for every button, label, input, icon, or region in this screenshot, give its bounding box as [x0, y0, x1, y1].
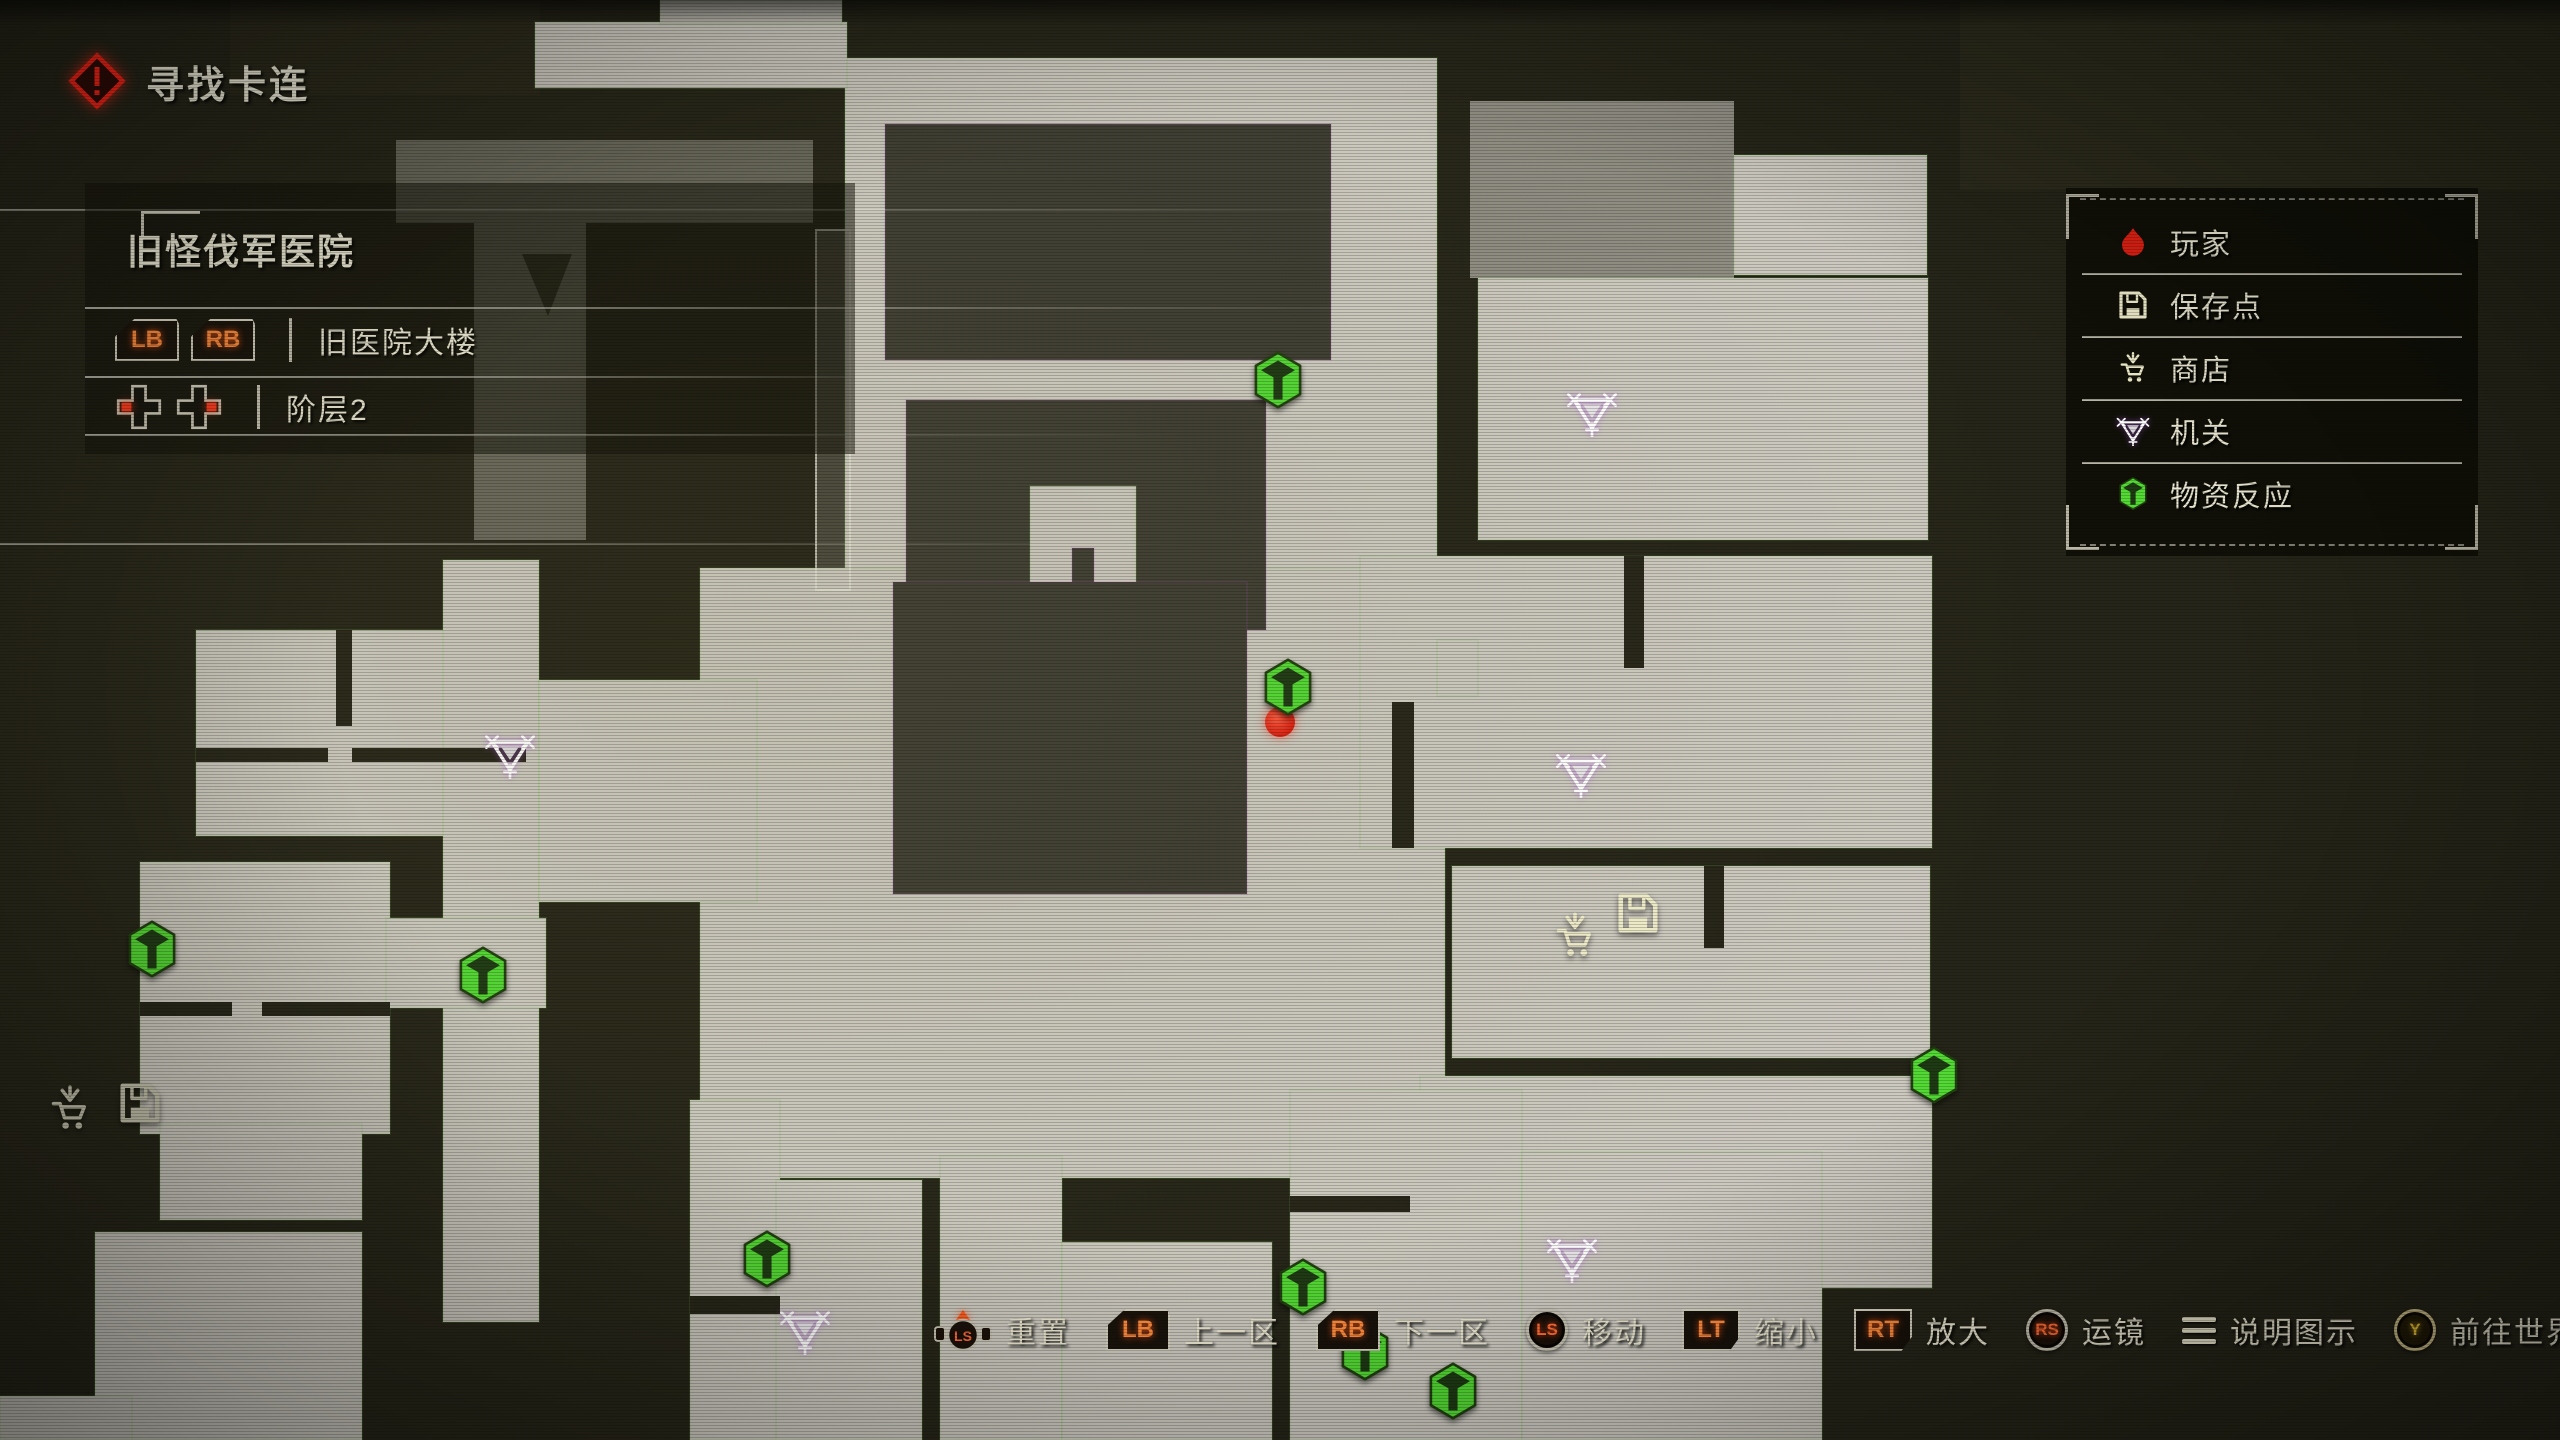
divider — [257, 385, 260, 429]
legend-dashed-border — [2080, 198, 2464, 200]
svg-text:LS: LS — [954, 1328, 972, 1344]
supply-reaction-icon — [2110, 477, 2156, 510]
control-lb: LB上一区 — [1106, 1308, 1280, 1352]
lb-button[interactable]: LB — [115, 319, 179, 361]
save-point-icon — [2110, 289, 2156, 321]
legend-item-3: 商店 — [2066, 336, 2478, 399]
control-rs: RS运镜 — [2026, 1308, 2146, 1352]
control-rt: RT放大 — [1854, 1308, 1990, 1352]
legend-panel: 玩家 保存点 商店 机关 物资反应 — [2066, 188, 2478, 556]
legend-label: 物资反应 — [2170, 473, 2294, 515]
mechanism-icon — [2110, 415, 2156, 447]
floor-row: 阶层2 — [115, 383, 369, 431]
quest-alert-icon — [66, 50, 128, 112]
lb-button[interactable]: LB — [1106, 1309, 1170, 1351]
control-rb: RB下一区 — [1316, 1308, 1490, 1352]
rb-button[interactable]: RB — [191, 319, 255, 361]
control-label: 上一区 — [1184, 1308, 1280, 1352]
legend-item-4: 机关 — [2066, 399, 2478, 462]
player-icon — [2110, 227, 2156, 257]
location-panel: 旧怪伐军医院 LB RB 旧医院大楼 阶层2 — [85, 183, 855, 454]
legend-label: 机关 — [2170, 410, 2232, 452]
rb-button[interactable]: RB — [1316, 1309, 1380, 1351]
control-label: 放大 — [1926, 1308, 1990, 1352]
control-menu: 说明图示 — [2182, 1308, 2358, 1352]
ls-press-icon[interactable]: LS — [934, 1307, 992, 1353]
control-label: 下一区 — [1394, 1308, 1490, 1352]
panel-divider — [85, 307, 985, 309]
legend-item-2: 保存点 — [2066, 273, 2478, 336]
legend-dashed-border — [2080, 544, 2464, 546]
quest-tracker: 寻找卡连 — [66, 50, 310, 112]
panel-divider — [85, 376, 835, 378]
legend-label: 商店 — [2170, 347, 2232, 389]
area-name: 旧医院大楼 — [318, 318, 478, 362]
rt-button[interactable]: RT — [1854, 1309, 1912, 1351]
location-title: 旧怪伐军医院 — [127, 223, 355, 275]
dpad-left-icon[interactable] — [115, 383, 163, 431]
rs-button[interactable]: RS — [2026, 1309, 2068, 1351]
legend-label: 保存点 — [2170, 284, 2263, 326]
ls-button[interactable]: LS — [1526, 1309, 1568, 1351]
control-label: 前往世界地图 — [2450, 1308, 2560, 1352]
y-button[interactable]: Y — [2394, 1309, 2436, 1351]
lt-button[interactable]: LT — [1682, 1309, 1740, 1351]
divider — [289, 318, 292, 362]
control-label: 说明图示 — [2230, 1308, 2358, 1352]
control-bar: LS重置LB上一区RB下一区LS移动LT缩小RT放大RS运镜说明图示Y前往世界地… — [934, 1304, 2560, 1356]
legend-label: 玩家 — [2170, 221, 2232, 263]
control-ls: LS移动 — [1526, 1308, 1646, 1352]
map-screen: 寻找卡连 旧怪伐军医院 LB RB 旧医院大楼 阶层2 — [0, 0, 2560, 1440]
panel-divider — [85, 434, 835, 436]
control-y: Y前往世界地图 — [2394, 1308, 2560, 1352]
control-label: 运镜 — [2082, 1308, 2146, 1352]
dpad-right-icon[interactable] — [175, 383, 223, 431]
legend-item-1: 玩家 — [2066, 210, 2478, 273]
control-ls-press: LS重置 — [934, 1307, 1070, 1353]
area-row: LB RB 旧医院大楼 — [115, 318, 478, 362]
control-label: 缩小 — [1754, 1308, 1818, 1352]
control-label: 重置 — [1006, 1308, 1070, 1352]
control-lt: LT缩小 — [1682, 1308, 1818, 1352]
menu-icon[interactable] — [2182, 1317, 2216, 1344]
shop-icon — [2110, 351, 2156, 384]
quest-title: 寻找卡连 — [146, 54, 310, 109]
control-label: 移动 — [1582, 1308, 1646, 1352]
floor-name: 阶层2 — [286, 385, 369, 429]
legend-item-5: 物资反应 — [2066, 462, 2478, 525]
